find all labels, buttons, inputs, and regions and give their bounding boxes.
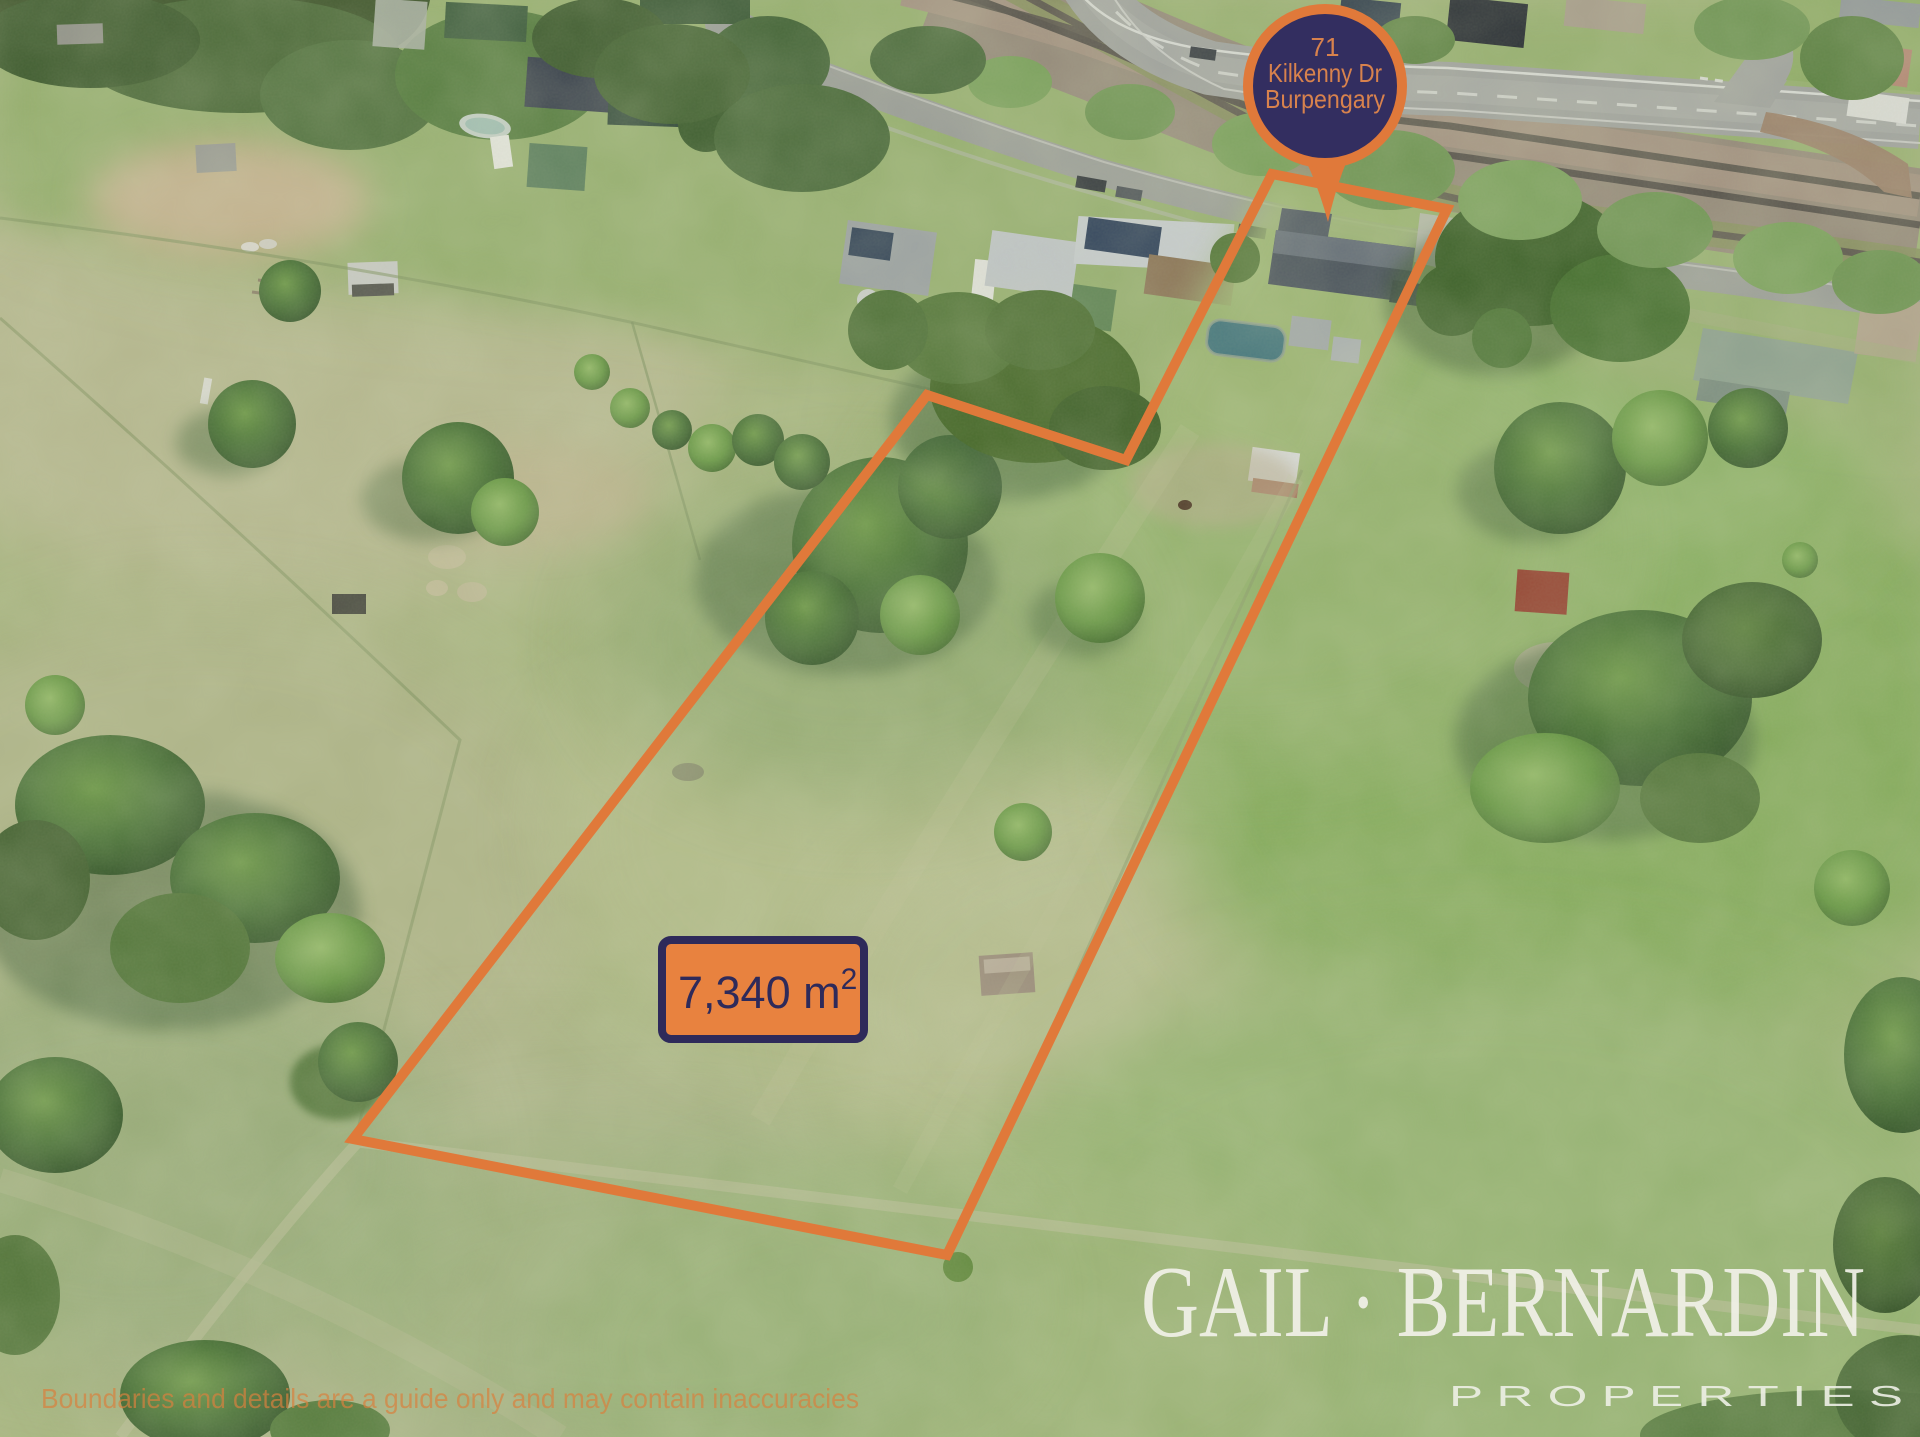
svg-text:P R O P E R T I E S: P R O P E R T I E S	[1449, 1381, 1903, 1413]
svg-text:Boundaries and details are a g: Boundaries and details are a guide only …	[41, 1383, 859, 1414]
svg-text:7,340 m2: 7,340 m2	[678, 963, 857, 1018]
svg-text:Burpengary: Burpengary	[1265, 84, 1385, 114]
svg-text:GAIL · BERNARDIN: GAIL · BERNARDIN	[1141, 1246, 1865, 1359]
